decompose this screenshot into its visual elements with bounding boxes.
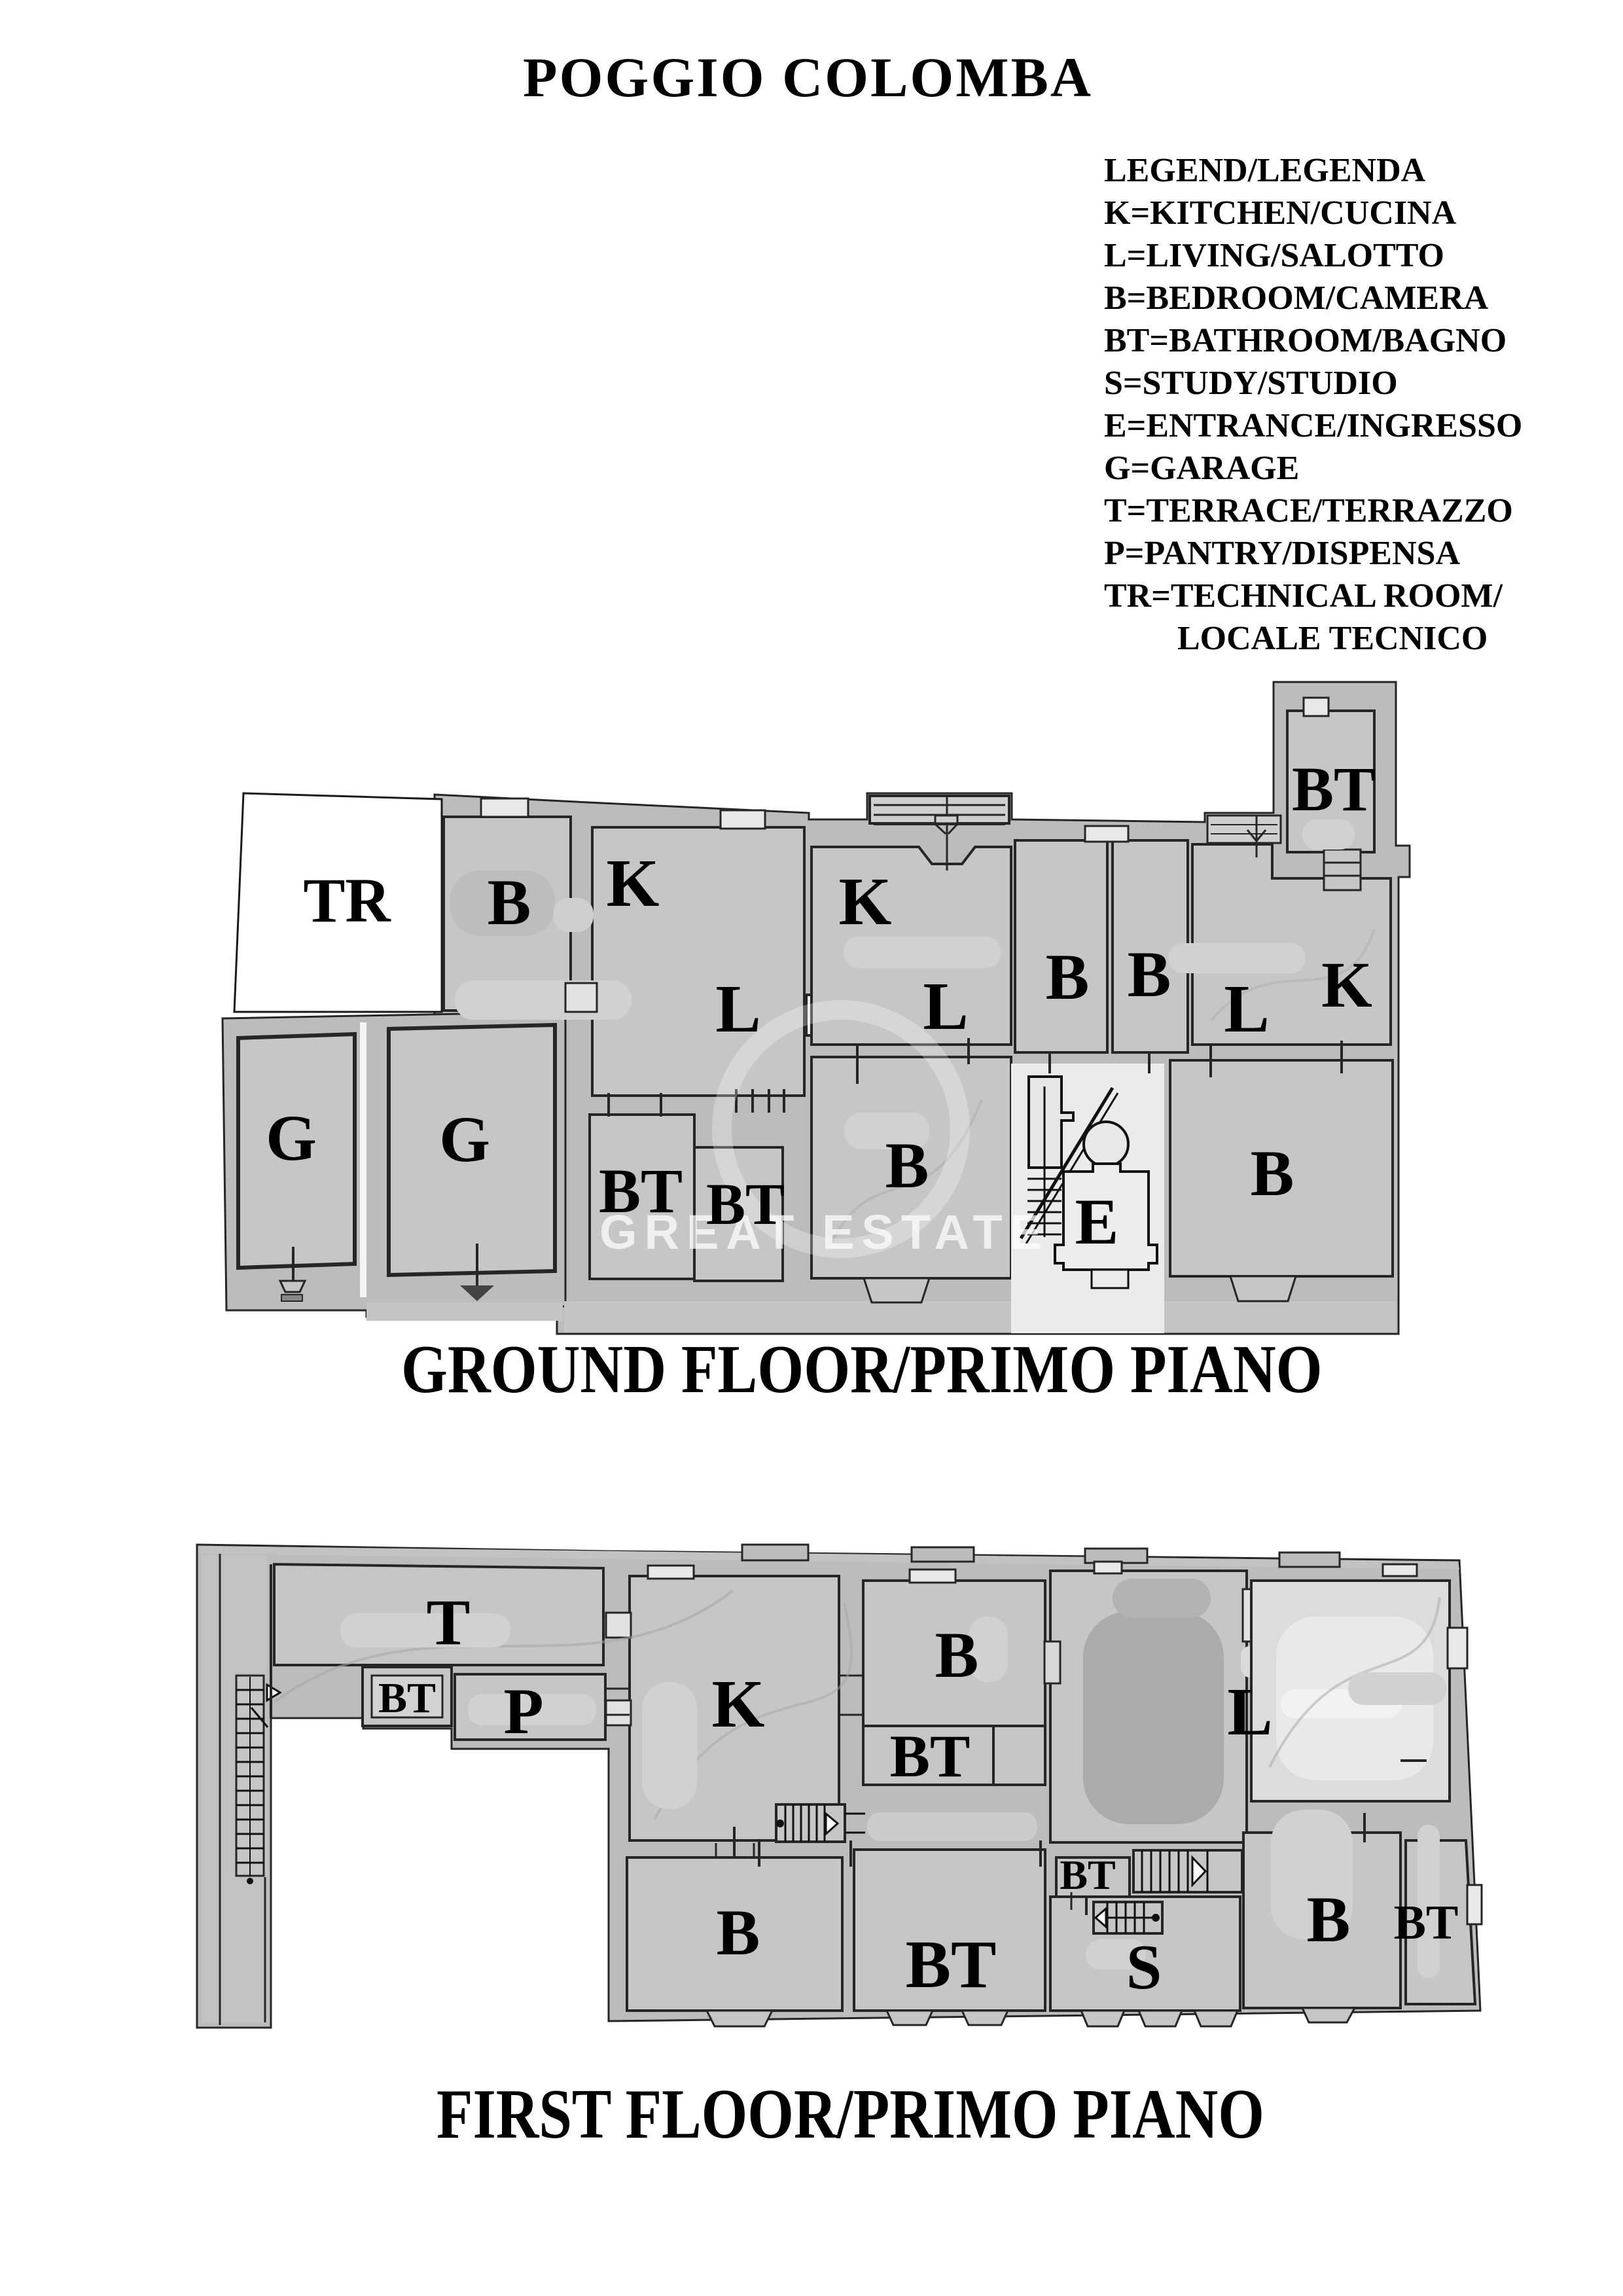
svg-text:BT: BT — [1292, 754, 1376, 824]
svg-text:B: B — [717, 1896, 760, 1969]
svg-text:B: B — [488, 866, 531, 939]
svg-text:G: G — [266, 1102, 317, 1174]
svg-text:L: L — [1224, 971, 1269, 1047]
svg-text:G: G — [439, 1103, 490, 1175]
svg-text:K: K — [839, 864, 892, 939]
svg-text:BT: BT — [890, 1723, 971, 1789]
svg-text:BT: BT — [1060, 1852, 1115, 1898]
svg-text:BT: BT — [599, 1156, 683, 1226]
svg-text:BT: BT — [378, 1674, 436, 1722]
svg-text:S: S — [1126, 1932, 1162, 2003]
svg-text:E: E — [1075, 1185, 1119, 1258]
svg-text:B: B — [1307, 1883, 1351, 1956]
svg-text:B: B — [1128, 938, 1171, 1011]
svg-text:B: B — [1046, 941, 1090, 1013]
svg-text:B: B — [1251, 1137, 1294, 1210]
svg-text:TR: TR — [303, 865, 391, 935]
svg-text:BT: BT — [1394, 1896, 1459, 1950]
svg-text:BT: BT — [906, 1927, 997, 2002]
svg-text:K: K — [607, 846, 660, 921]
svg-text:L: L — [715, 971, 760, 1047]
svg-text:B: B — [935, 1619, 979, 1691]
svg-text:BT: BT — [706, 1172, 785, 1237]
svg-text:K: K — [712, 1666, 765, 1742]
svg-text:T: T — [427, 1586, 471, 1659]
svg-text:P: P — [503, 1675, 543, 1748]
svg-text:K: K — [1321, 948, 1372, 1021]
svg-text:L: L — [923, 969, 968, 1044]
svg-text:L: L — [1227, 1674, 1272, 1749]
svg-text:B: B — [885, 1129, 929, 1202]
